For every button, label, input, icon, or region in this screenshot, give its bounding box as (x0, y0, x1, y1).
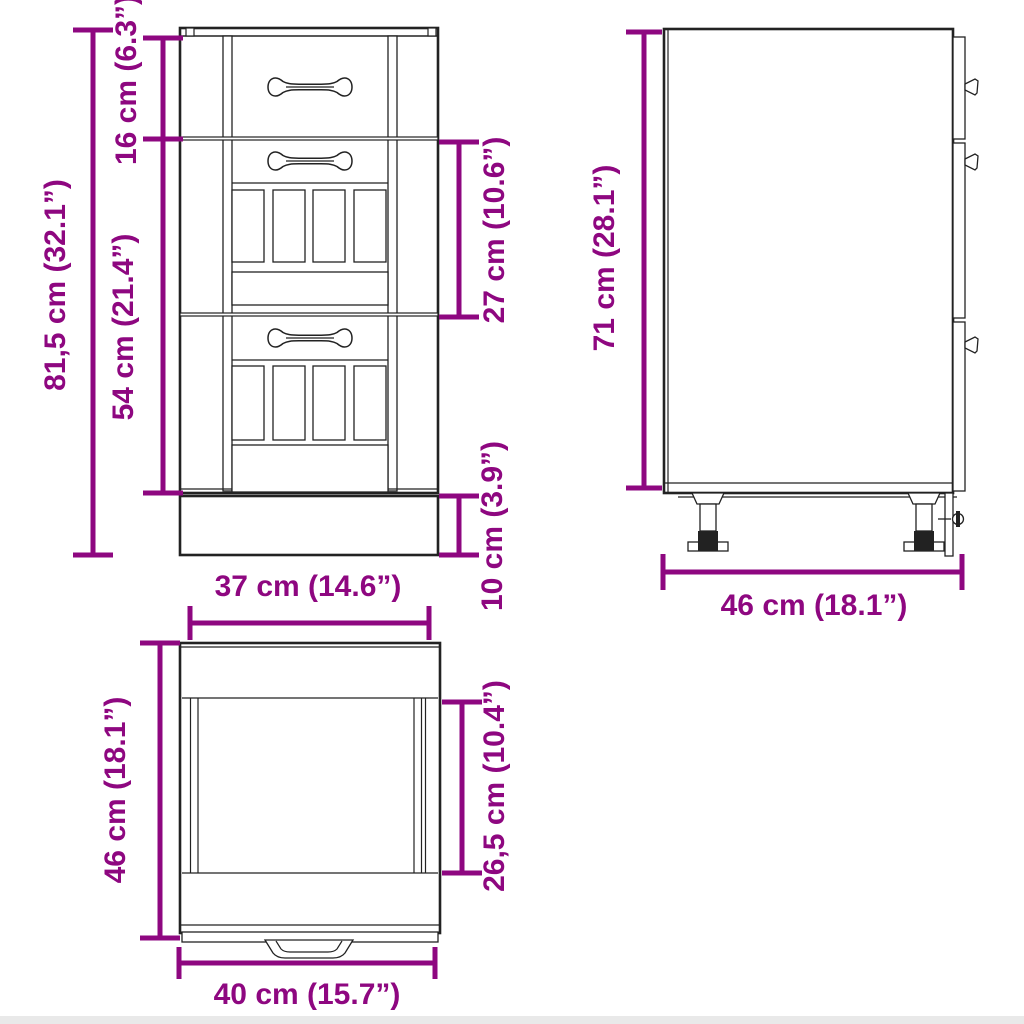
front-view (180, 28, 438, 555)
dim-label-top-view-width: 40 cm (15.7”) (147, 977, 467, 1013)
dim-label-top-view-depth: 46 cm (18.1”) (98, 630, 134, 950)
dim-label-side-depth: 46 cm (18.1”) (654, 588, 974, 624)
dim-label-top-view-inner-depth: 26,5 cm (10.4”) (477, 626, 513, 946)
leveling-screw-knob (956, 511, 960, 527)
dim-front-middle-drawer-line (439, 142, 479, 317)
dim-front-lower-drawers-line (143, 139, 183, 493)
dim-front-plinth-line (439, 496, 479, 555)
dim-side-height-line (626, 32, 662, 488)
dim-top-view-depth-line (140, 643, 180, 938)
adjustable-foot-back (904, 493, 944, 551)
drawer-clip-2 (965, 154, 978, 170)
dim-label-front-lower-drawers: 54 cm (21.4”) (106, 167, 142, 487)
back-panel-edge (945, 493, 953, 556)
dim-label-front-middle-drawer: 27 cm (10.6”) (477, 70, 513, 390)
drawer-clip-3 (965, 337, 978, 353)
drawer-clip-1 (965, 79, 978, 95)
image-edge-strip (0, 1016, 1024, 1024)
side-view (664, 29, 978, 556)
dimension-diagram-canvas: 81,5 cm (32.1”) 16 cm (6.3”) 54 cm (21.4… (0, 0, 1024, 1024)
dim-label-side-height: 71 cm (28.1”) (587, 98, 623, 418)
front-right-stile (388, 36, 397, 491)
dim-front-width-line (190, 606, 429, 640)
dim-top-view-inner-depth-line (442, 702, 482, 873)
top-view-handle (265, 940, 353, 958)
dim-label-front-width: 37 cm (14.6”) (148, 569, 468, 605)
front-left-stile (223, 36, 232, 491)
front-plinth (180, 496, 438, 555)
top-view (180, 643, 440, 958)
dim-side-depth-line (663, 554, 962, 590)
dim-front-top-drawer-line (143, 38, 183, 139)
dim-label-front-overall-height: 81,5 cm (32.1”) (38, 125, 74, 445)
adjustable-foot-front (688, 493, 728, 551)
